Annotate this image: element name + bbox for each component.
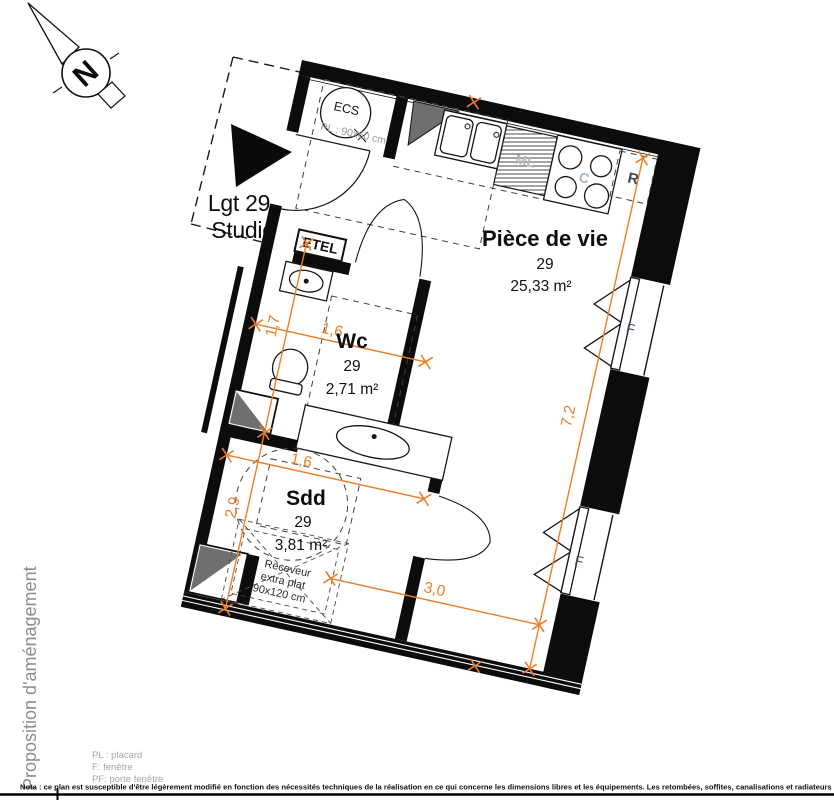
living-room-number: 29 bbox=[536, 256, 553, 273]
vertical-title: Proposition d'aménagement bbox=[20, 566, 40, 790]
floor-plan-canvas: N Lgt 29 Studio bbox=[0, 0, 834, 800]
wc-name: Wc bbox=[336, 330, 368, 353]
nota-text: Nota : ce plan est susceptible d'être lé… bbox=[20, 783, 834, 792]
wall-east-middle bbox=[580, 369, 649, 514]
technical-duct-lower bbox=[188, 543, 248, 603]
window-lower: F bbox=[532, 500, 614, 600]
dim-living-width: 3,0 bbox=[422, 579, 447, 600]
floor-plan-page: N Lgt 29 Studio bbox=[0, 0, 834, 800]
unit-label-line1: Lgt 29 bbox=[208, 190, 270, 216]
dim-living-height: 7,2 bbox=[558, 404, 579, 429]
wc-number: 29 bbox=[343, 358, 360, 375]
title-block: Proposition d'aménagement PL : placard F… bbox=[0, 566, 834, 800]
wc-area: 2,71 m² bbox=[326, 381, 379, 398]
dim-sdd-width: 1,6 bbox=[289, 450, 314, 471]
shower-label: Receveur extra plat 90x120 cm bbox=[252, 557, 313, 606]
living-room-name: Pièce de vie bbox=[482, 226, 608, 251]
wall-south bbox=[181, 592, 583, 695]
wall-east-upper bbox=[631, 140, 700, 285]
north-compass-icon: N bbox=[28, 3, 125, 108]
legend-fenetre: F: fenêtre bbox=[92, 762, 133, 773]
sdd-number: 29 bbox=[294, 514, 311, 531]
wc-door-swing bbox=[355, 192, 435, 277]
living-room-area: 25,33 m² bbox=[510, 278, 571, 295]
window-upper: F bbox=[581, 271, 664, 376]
wall-ecs-closet bbox=[383, 96, 408, 159]
wall-west-top bbox=[286, 75, 310, 133]
sdd-door-swing bbox=[425, 496, 497, 571]
entrance-door bbox=[279, 134, 370, 225]
dim-sdd-height: 2,9 bbox=[222, 495, 243, 520]
sdd-area: 3,81 m² bbox=[275, 537, 328, 554]
sdd-name: Sdd bbox=[286, 487, 326, 510]
legend-placard: PL : placard bbox=[92, 750, 142, 761]
entrance-arrow-icon bbox=[231, 124, 292, 187]
